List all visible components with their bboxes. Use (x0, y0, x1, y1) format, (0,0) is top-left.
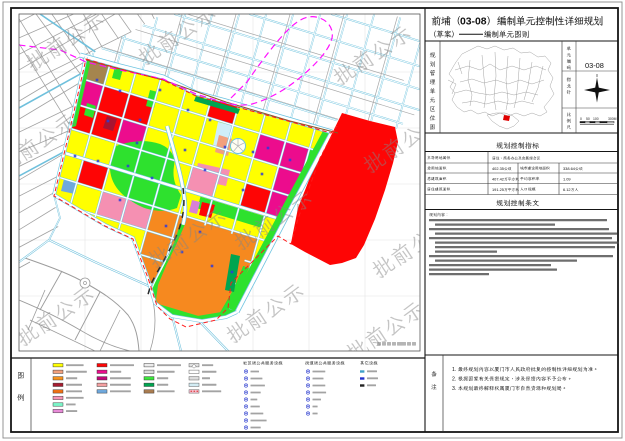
svg-text:338.64: 338.64 (563, 166, 576, 171)
svg-text:1.09: 1.09 (563, 177, 571, 182)
svg-text:402.35: 402.35 (492, 166, 504, 171)
svg-text:100: 100 (593, 117, 599, 121)
svg-text:3.: 3. (452, 386, 456, 392)
svg-text:191.25: 191.25 (492, 187, 504, 192)
svg-text:300M: 300M (608, 117, 617, 121)
svg-text:03-08: 03-08 (585, 61, 604, 70)
svg-text:0: 0 (580, 117, 582, 121)
svg-text:6.12: 6.12 (563, 187, 571, 192)
svg-text:2.: 2. (452, 377, 456, 383)
svg-text:03-08: 03-08 (460, 17, 487, 28)
svg-text:407.42: 407.42 (492, 177, 504, 182)
svg-text:1.: 1. (452, 367, 456, 373)
svg-text:50: 50 (586, 117, 590, 121)
